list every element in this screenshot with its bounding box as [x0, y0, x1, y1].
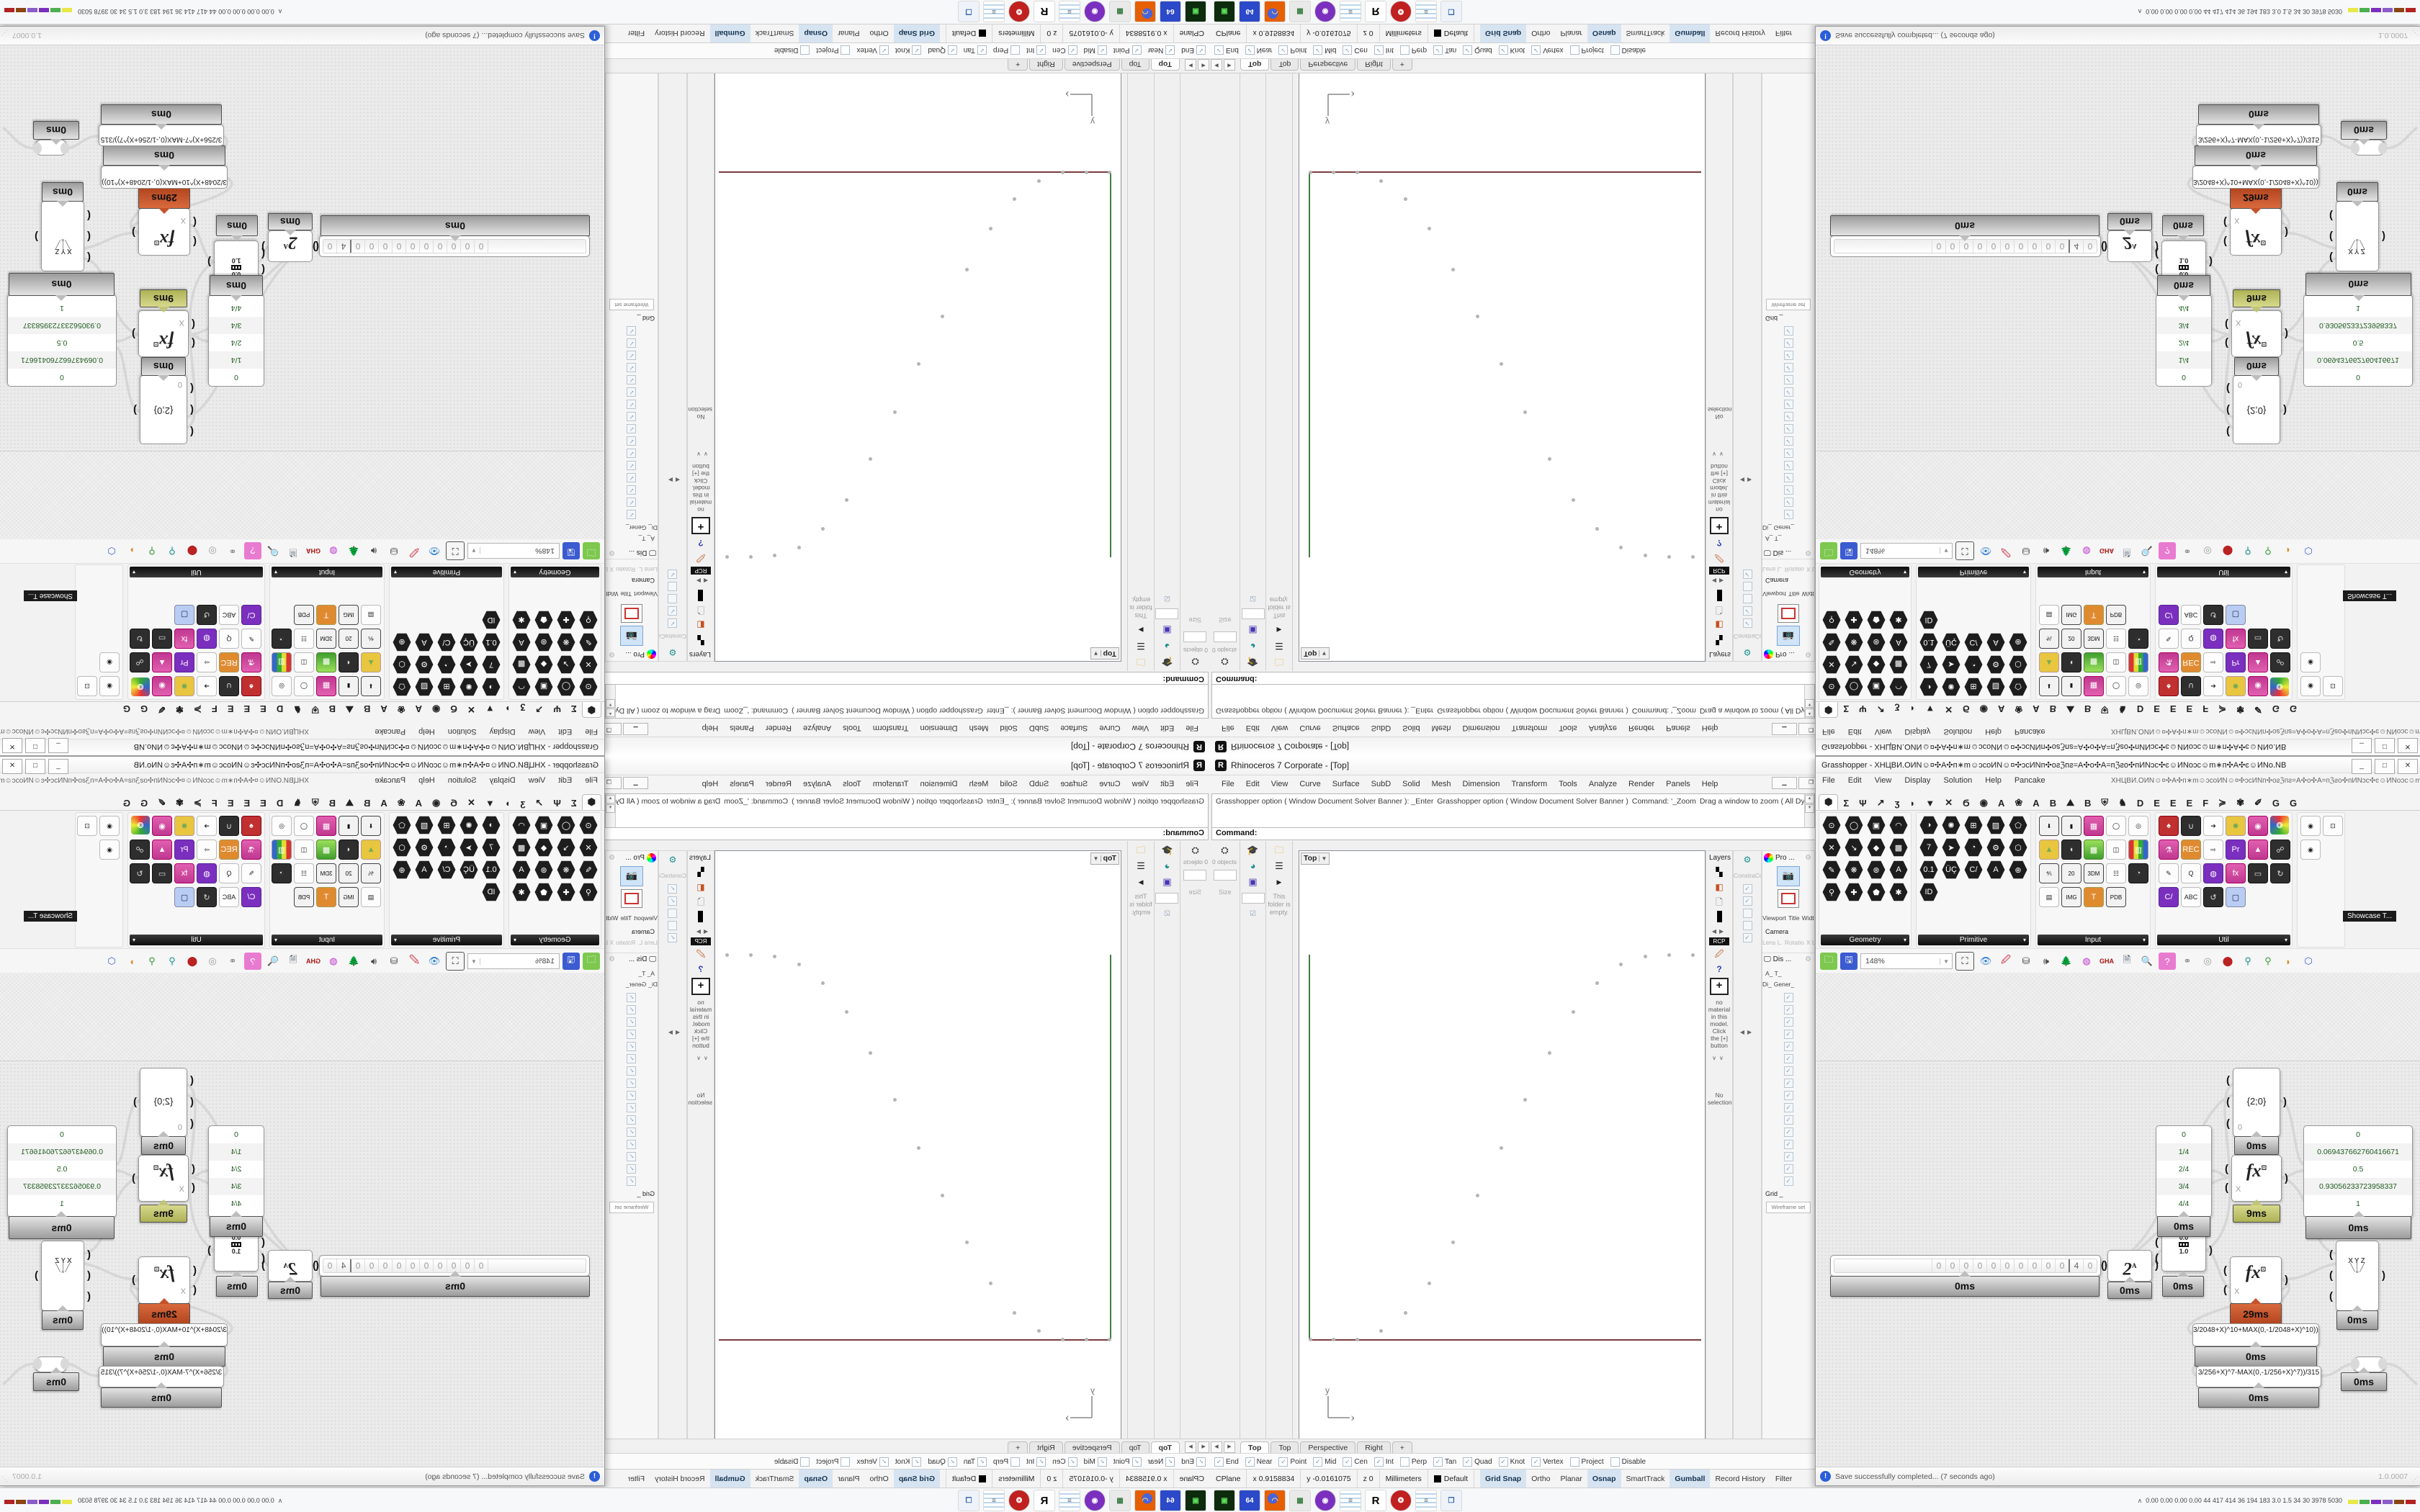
- list-item[interactable]: Cont: [1755, 633, 1762, 640]
- layer-color-icon[interactable]: ◧: [1711, 881, 1727, 894]
- osnap-checkbox[interactable]: ✓: [1313, 1457, 1322, 1467]
- output-grip[interactable]: ): [2209, 258, 2213, 265]
- palette-icon[interactable]: ▢: [2226, 605, 2246, 625]
- list-item[interactable]: Analyze: [1583, 780, 1623, 788]
- list-item[interactable]: X Loca.: [605, 939, 614, 946]
- speaker-icon[interactable]: 🕪: [2038, 953, 2055, 970]
- list-item[interactable]: Lens L.: [1762, 939, 1785, 946]
- osnap-project[interactable]: Project: [1570, 1457, 1604, 1467]
- status-cell[interactable]: Millimeters: [992, 1470, 1040, 1488]
- list-item[interactable]: ✓: [627, 326, 637, 336]
- list-item[interactable]: Title: [1788, 914, 1802, 922]
- pink-box-icon[interactable]: ?: [2159, 542, 2176, 559]
- slider-digit[interactable]: 0: [406, 1259, 420, 1272]
- list-item[interactable]: Pancake: [368, 776, 412, 785]
- osnap-checkbox[interactable]: ✓: [1531, 46, 1541, 55]
- gh-node-expression-29[interactable]: fx⊡X((): [138, 1256, 190, 1304]
- palette-icon[interactable]: IMG: [339, 887, 359, 907]
- layer-color-icon[interactable]: ◧: [693, 881, 709, 894]
- gh-canvas[interactable]: 000000000040)0ms2A()0ms0.01.0(()0msfx⊡X(…: [0, 973, 604, 1467]
- gh-tab[interactable]: Σ: [566, 702, 582, 716]
- list-item[interactable]: Render: [760, 724, 797, 732]
- gh-tab[interactable]: ⛰: [341, 702, 359, 716]
- palette-icon[interactable]: ▣: [1867, 678, 1886, 696]
- list-item[interactable]: ✓: [627, 387, 637, 397]
- list-item[interactable]: Grasshopper option ( Window Document Sol…: [1433, 797, 1628, 806]
- palette-icon[interactable]: ⊞: [1964, 816, 1983, 834]
- list-item[interactable]: Tools: [1553, 780, 1583, 788]
- properties-panel[interactable]: Pro ... ⚙ 📷 ViewportTitleWidthHeightProj…: [605, 71, 658, 662]
- gh-tab[interactable]: Ϭ: [1958, 796, 1975, 810]
- window-frame-icon[interactable]: ❐: [958, 1, 980, 22]
- toggle-gumball[interactable]: Gumball: [710, 1470, 750, 1488]
- checkbox-icon[interactable]: ☑: [1246, 908, 1260, 921]
- toggle-filter[interactable]: Filter: [623, 1470, 650, 1488]
- palette-icon[interactable]: ◫: [2106, 652, 2126, 672]
- palette-icon[interactable]: ⬇: [2039, 816, 2059, 836]
- output-grip[interactable]: ): [132, 1277, 135, 1284]
- list-item[interactable]: Help: [1696, 780, 1724, 788]
- palette-icon[interactable]: fx: [174, 629, 194, 649]
- list-item[interactable]: Render: [1623, 724, 1660, 732]
- slider-digit[interactable]: 0: [323, 1259, 337, 1272]
- viewport-tab-right[interactable]: Right: [1029, 1441, 1063, 1454]
- osnap-checkbox[interactable]: [1610, 1457, 1620, 1467]
- palette-icon[interactable]: ↺: [2203, 887, 2223, 907]
- palette-icon[interactable]: ◉: [152, 816, 172, 836]
- output-grip[interactable]: ): [132, 330, 135, 337]
- list-item[interactable]: ✓: [627, 473, 637, 482]
- list-item[interactable]: Solid: [994, 780, 1023, 788]
- notepad-icon[interactable]: ≡: [1059, 1, 1080, 22]
- palette-icon[interactable]: IMG: [2061, 605, 2081, 625]
- palette-icon[interactable]: ◍: [2203, 863, 2223, 883]
- osnap-cen[interactable]: ✓Cen: [1052, 46, 1077, 55]
- list-item[interactable]: View: [1265, 780, 1294, 788]
- gh-tab[interactable]: B: [2045, 702, 2061, 716]
- list-item[interactable]: Lens L.: [635, 939, 658, 946]
- rhino-menu-items[interactable]: FileEditViewCurveSurfaceSubDSolidMeshDim…: [1210, 724, 1729, 732]
- list-item[interactable]: ✓: [1784, 436, 1793, 446]
- screen-capture-icon[interactable]: ▦: [1109, 1, 1131, 22]
- viewport-tab-top[interactable]: Top: [1121, 58, 1149, 71]
- osnap-tan[interactable]: ✓Tan: [1433, 1457, 1456, 1467]
- rhino-app-icon[interactable]: R: [1034, 1, 1055, 22]
- constraints-panel[interactable]: ⚙ ConstraContTapaOptionUV FG0 PrG1 PrQua…: [1733, 71, 1762, 662]
- palette-icon[interactable]: ➤: [1942, 655, 1960, 674]
- palette-icon[interactable]: ✎: [579, 633, 598, 652]
- palette-icon[interactable]: ◆: [534, 838, 553, 857]
- toggle-gumball[interactable]: Gumball: [1670, 1470, 1710, 1488]
- palette-icon[interactable]: ⬇: [361, 676, 381, 696]
- list-item[interactable]: ✓: [1784, 1042, 1793, 1051]
- osnap-project[interactable]: Project: [1570, 46, 1604, 55]
- notepad2-icon[interactable]: ≡: [983, 1, 1005, 22]
- palette-icon[interactable]: ⊙: [579, 816, 598, 834]
- list-item[interactable]: ✓: [627, 363, 637, 372]
- status-cell[interactable]: y -0.0161075: [1301, 24, 1357, 42]
- gh-node-construct-point[interactable]: XYZ╲│╱°(((): [41, 1241, 84, 1311]
- palette-icon[interactable]: ⊙: [1822, 678, 1841, 696]
- purple-bot-icon[interactable]: ◉: [1314, 1490, 1336, 1511]
- layers-materials-panel[interactable]: Layers ▚ ◧ 🗋 ◀▶ RCP 🖉 ? + no material in…: [1706, 71, 1733, 662]
- gh-tab[interactable]: ✾: [2231, 702, 2249, 716]
- slider-digit[interactable]: 0: [1959, 240, 1973, 253]
- list-item[interactable]: Mesh: [963, 724, 994, 732]
- firefox-icon[interactable]: ◠: [1264, 1490, 1286, 1511]
- osnap-checkbox[interactable]: ✓: [879, 46, 889, 55]
- gh-tab[interactable]: B: [359, 702, 375, 716]
- teal-pin-icon[interactable]: ⚲: [163, 953, 181, 970]
- list-item[interactable]: File: [1216, 724, 1240, 732]
- palette-icon[interactable]: ◯: [557, 816, 575, 834]
- toggle-ortho[interactable]: Ortho: [865, 24, 894, 42]
- list-item[interactable]: Grasshopper option ( Window Document Sol…: [987, 797, 1208, 806]
- palette-icon[interactable]: ◑: [482, 816, 501, 834]
- gh-node-values-panel[interactable]: 00.0694376627604166710.50.93056233723958…: [2303, 294, 2413, 387]
- list-item[interactable]: ✓: [1784, 363, 1793, 372]
- palette-icon[interactable]: ▲: [361, 840, 381, 860]
- list-item[interactable]: ✓: [1784, 1140, 1793, 1149]
- palette-icon[interactable]: ⬠: [393, 816, 411, 834]
- palette-icon[interactable]: C/: [1964, 633, 1983, 652]
- osnap-knot[interactable]: ✓Knot: [895, 46, 922, 55]
- camera-property-rows[interactable]: Lens L.RotatioX Loca.Y Loca.Z Loca.Dista…: [1762, 935, 1814, 948]
- panel-nav-arrows[interactable]: ◀▶: [1706, 928, 1732, 935]
- list-item[interactable]: X Loca.: [1806, 939, 1815, 946]
- slider-digit[interactable]: 0: [2027, 240, 2041, 253]
- toggle-record-history[interactable]: Record History: [650, 24, 709, 42]
- palette-icon[interactable]: ✎: [1822, 633, 1841, 652]
- list-item[interactable]: Command: '_Zoom: [724, 706, 792, 715]
- status-cell[interactable]: CPlane: [1173, 1470, 1210, 1488]
- constraints-panel[interactable]: ⚙ ConstraContTapaOptionUV FG0 PrG1 PrQua…: [1733, 850, 1762, 1441]
- toggle-planar[interactable]: Planar: [833, 1470, 864, 1488]
- list-item[interactable]: Dimension: [915, 780, 964, 788]
- list-item[interactable]: Solid: [1397, 724, 1425, 732]
- palette-icon[interactable]: ▩: [1889, 655, 1908, 674]
- gh-node-quads-panel[interactable]: 01/42/43/44/4(): [208, 1125, 264, 1218]
- red-badge-icon[interactable]: ❂: [1390, 1490, 1412, 1511]
- list-item[interactable]: View: [522, 776, 552, 785]
- palette-icon[interactable]: ▦: [316, 816, 336, 836]
- top-viewport[interactable]: Top▼ y x: [714, 72, 1121, 662]
- gh-tab[interactable]: ✐: [2249, 796, 2267, 810]
- solver-barrel-icon[interactable]: ⛁: [385, 542, 403, 559]
- tab-scroll-right-icon[interactable]: ▶: [1224, 1441, 1235, 1453]
- input-grip[interactable]: (: [2225, 1166, 2228, 1173]
- input-grip[interactable]: (: [2329, 1293, 2333, 1300]
- osnap-checkbox[interactable]: ✓: [1463, 1457, 1472, 1467]
- gh-tab[interactable]: ✐: [153, 796, 171, 810]
- toggle-grid-snap[interactable]: Grid Snap: [1480, 1470, 1526, 1488]
- palette-icon[interactable]: ▲: [361, 652, 381, 672]
- display-checkboxes[interactable]: ✓✓✓✓✓✓✓✓✓✓✓✓✓✓✓✓: [606, 326, 658, 522]
- slider-digit[interactable]: 0: [2083, 1259, 2097, 1272]
- osnap-near[interactable]: ✓Near: [1245, 1457, 1273, 1467]
- terminal-app-icon[interactable]: ▣: [1185, 1490, 1206, 1511]
- palette-icon[interactable]: ✎: [241, 629, 261, 649]
- constraints-panel[interactable]: ⚙ ConstraContTapaOptionUV FG0 PrG1 PrQua…: [658, 850, 687, 1441]
- command-scrollbar[interactable]: ▲▼: [1804, 794, 1814, 827]
- add-material-button[interactable]: +: [691, 517, 710, 534]
- palette-icon[interactable]: ◍: [197, 629, 217, 649]
- gh-tab[interactable]: ⛨: [2096, 796, 2113, 810]
- gh-node-quads-panel[interactable]: 01/42/43/44/4(): [208, 294, 264, 387]
- palette-icon[interactable]: ✕: [1822, 655, 1841, 674]
- status-cell[interactable]: CPlane: [1210, 24, 1247, 42]
- output-grip[interactable]: ): [207, 258, 211, 265]
- tray-chevron-icon[interactable]: ʌ: [279, 8, 282, 15]
- left-input-box[interactable]: [1242, 893, 1265, 904]
- viewport-tab-top[interactable]: Top: [1151, 58, 1180, 71]
- palette-icon[interactable]: REC: [219, 840, 239, 860]
- education-icon[interactable]: 🎓: [1160, 844, 1175, 857]
- save-file-icon[interactable]: 🖫: [563, 953, 580, 970]
- viewport-tab-perspective[interactable]: Perspective: [1065, 58, 1120, 71]
- gh-node-quads-panel[interactable]: 01/42/43/44/4(): [2156, 294, 2212, 387]
- list-item[interactable]: ✓: [1784, 1152, 1793, 1161]
- osnap-int[interactable]: ✓Int: [1374, 1457, 1394, 1467]
- gh-tab[interactable]: A: [1993, 796, 2009, 810]
- palette-icon[interactable]: ↘: [1845, 655, 1863, 674]
- list-item[interactable]: ✓: [1784, 485, 1793, 495]
- palette-icon[interactable]: ↺: [2203, 605, 2223, 625]
- list-item[interactable]: Width: [1802, 914, 1815, 922]
- osnap-checkbox[interactable]: ✓: [948, 46, 957, 55]
- gh-tab[interactable]: ♞: [288, 702, 307, 716]
- check-2[interactable]: ✓: [1743, 606, 1752, 616]
- list-item[interactable]: Solution: [1937, 776, 1978, 785]
- gh-tab[interactable]: Ϭ: [445, 796, 462, 810]
- list-item[interactable]: Help: [696, 724, 725, 732]
- palette-icon[interactable]: ÜÇ: [1942, 633, 1960, 652]
- wireframe-settings-button[interactable]: Wireframe set: [1766, 1202, 1811, 1213]
- viewport-properties-button[interactable]: [1778, 889, 1799, 908]
- viewport-tab-+[interactable]: +: [1008, 58, 1028, 71]
- gh-node-construct-point[interactable]: XYZ╲│╱°(((): [2336, 201, 2379, 271]
- orange-half-icon[interactable]: ◗: [123, 953, 140, 970]
- status-cell[interactable]: y -0.0161075: [1062, 24, 1119, 42]
- wire-display-icon[interactable]: 🖉: [1997, 542, 2015, 559]
- list-item[interactable]: ✓: [1784, 1164, 1793, 1174]
- command-prompt[interactable]: Command:: [601, 672, 1209, 685]
- palette-icon[interactable]: ⚙: [1986, 655, 2005, 674]
- palette-icon[interactable]: fx: [2226, 629, 2246, 649]
- tray-chevron-icon[interactable]: ʌ: [2138, 1497, 2142, 1504]
- palette-icon[interactable]: ♠: [2159, 676, 2179, 696]
- palette-icon[interactable]: ▮: [339, 676, 359, 696]
- list-item[interactable]: Solution: [442, 776, 483, 785]
- checkbox-icon[interactable]: ☑: [1246, 591, 1260, 604]
- folder-icon[interactable]: 🗀: [1134, 655, 1148, 668]
- tab-scroll-left-icon[interactable]: ◀: [1211, 59, 1222, 71]
- osnap-checkbox[interactable]: ✓: [1343, 1457, 1352, 1467]
- gha-icon[interactable]: GHA: [2098, 953, 2115, 970]
- slider-digit[interactable]: 0: [1986, 1259, 2000, 1272]
- pink-box-icon[interactable]: ?: [2159, 953, 2176, 970]
- palette-icon[interactable]: Q: [219, 863, 239, 883]
- gh-node-expression-29[interactable]: fx⊡X((): [138, 208, 190, 256]
- toggle-smarttrack[interactable]: SmartTrack: [750, 24, 799, 42]
- osnap-checkbox[interactable]: ✓: [1278, 1457, 1288, 1467]
- list-item[interactable]: Surface: [1054, 724, 1093, 732]
- palette-icon[interactable]: ◯: [557, 678, 575, 696]
- osnap-quad[interactable]: ✓Quad: [928, 1457, 956, 1467]
- list-item[interactable]: Cont: [1755, 872, 1762, 879]
- palette-icon[interactable]: ✎: [579, 860, 598, 879]
- palette-icon[interactable]: ↺: [197, 605, 217, 625]
- red-drop-icon[interactable]: ⬤: [184, 953, 201, 970]
- list-item[interactable]: Help: [1978, 727, 2008, 736]
- palette-group-label[interactable]: Input▾: [2038, 567, 2148, 577]
- gh-tab[interactable]: E: [223, 702, 239, 716]
- palette-icon[interactable]: ⊡: [77, 816, 97, 836]
- zoom-level-select[interactable]: 148%▼: [1860, 543, 1953, 559]
- solver-barrel-icon[interactable]: ⛁: [385, 953, 403, 970]
- palette-icon[interactable]: ID: [482, 611, 501, 629]
- palette-icon[interactable]: ✚: [557, 883, 575, 901]
- list-item[interactable]: View: [1265, 724, 1294, 732]
- list-item[interactable]: Command: '_Zoom: [1628, 797, 1696, 806]
- list-item[interactable]: Help: [412, 727, 442, 736]
- camera-property-rows[interactable]: Lens L.RotatioX Loca.Y Loca.Z Loca.Dista…: [1762, 564, 1814, 577]
- list-item[interactable]: Grasshopper option ( Window Document Sol…: [792, 797, 987, 806]
- list-item[interactable]: Help: [1696, 724, 1724, 732]
- palette-icon[interactable]: T: [316, 605, 336, 625]
- osnap-quad[interactable]: ✓Quad: [1463, 46, 1492, 55]
- osnap-checkbox[interactable]: [841, 1457, 850, 1467]
- purple-bot-icon[interactable]: ◉: [1084, 1490, 1106, 1511]
- palette-icon[interactable]: ✕: [579, 655, 598, 674]
- gh-tab[interactable]: G: [2285, 796, 2302, 810]
- gh-tab[interactable]: ✾: [171, 702, 189, 716]
- input-grip[interactable]: (: [2226, 406, 2230, 413]
- list-item[interactable]: View: [1868, 776, 1899, 785]
- palette-icon[interactable]: ⬠: [2009, 816, 2027, 834]
- toggle-ortho[interactable]: Ortho: [865, 1470, 894, 1488]
- osnap-checkbox[interactable]: ✓: [912, 1457, 921, 1467]
- palette-icon[interactable]: ▩: [316, 652, 336, 672]
- gh-maximize-button[interactable]: □: [25, 759, 45, 774]
- slider-digit[interactable]: 0: [420, 240, 434, 253]
- slider-digit[interactable]: 0: [475, 1259, 488, 1272]
- input-grip[interactable]: (: [2155, 266, 2159, 273]
- gh-tab[interactable]: E: [2148, 702, 2165, 716]
- move-gear-icon[interactable]: ⛭: [1188, 844, 1203, 857]
- palette-icon[interactable]: ▢: [2226, 887, 2246, 907]
- list-item[interactable]: ✓: [627, 1030, 637, 1039]
- palette-group-label[interactable]: Geometry▾: [1821, 935, 1909, 945]
- palette-icon[interactable]: ◉: [99, 840, 120, 860]
- palette-icon[interactable]: ☷: [294, 629, 314, 649]
- osnap-checkbox[interactable]: ✓: [1433, 46, 1443, 55]
- palette-icon[interactable]: ⬟: [534, 883, 553, 901]
- list-item[interactable]: ✓: [1784, 1103, 1793, 1112]
- gh-node-quads-panel[interactable]: 01/42/43/44/4(): [2156, 1125, 2212, 1218]
- list-item[interactable]: ✓: [1784, 1091, 1793, 1100]
- osnap-checkbox[interactable]: ✓: [1036, 1457, 1046, 1467]
- balls-icon[interactable]: ⚭: [2179, 542, 2196, 559]
- slider-digit[interactable]: 0: [2055, 1259, 2069, 1272]
- palette-icon[interactable]: ⚲: [579, 883, 598, 901]
- list-item[interactable]: Command: '_Zoom: [1628, 706, 1696, 715]
- list-item[interactable]: Di_: [1762, 524, 1774, 531]
- toggle-filter[interactable]: Filter: [1770, 24, 1797, 42]
- palette-icon[interactable]: ✹: [2226, 676, 2246, 696]
- palette-icon[interactable]: ◆: [1867, 838, 1886, 857]
- input-grip[interactable]: (: [190, 406, 194, 413]
- help-icon[interactable]: ?: [693, 963, 709, 976]
- palette-icon[interactable]: ▤: [361, 605, 381, 625]
- grasshopper-title-bar[interactable]: Grasshopper - ХНЦВИ.ОИN☺¤✣А✣п∗m☺ͻϲοИN☺¤✣…: [0, 757, 604, 773]
- palette-icon[interactable]: ↘: [557, 655, 575, 674]
- scroll-down-icon[interactable]: ▼: [1805, 699, 1814, 708]
- folder-panel[interactable]: 🗀 ☰ ▶ This folder is empty.: [1127, 72, 1154, 671]
- sphere-icon[interactable]: ◕: [1160, 860, 1175, 873]
- layer-color-icon[interactable]: ◧: [1711, 618, 1727, 631]
- add-material-button[interactable]: +: [1710, 978, 1729, 995]
- palette-group-label[interactable]: Primitive▾: [1918, 567, 2029, 577]
- check-5[interactable]: ✓: [1743, 570, 1752, 579]
- palette-icon[interactable]: Q: [2181, 629, 2201, 649]
- check-4[interactable]: [1743, 921, 1752, 930]
- hamburger-icon[interactable]: ☰: [1134, 860, 1148, 873]
- palette-icon[interactable]: ◠: [512, 816, 531, 834]
- palette-icon[interactable]: Pr: [2226, 652, 2246, 672]
- gear-icon[interactable]: ⚙: [1805, 650, 1811, 658]
- status-cell[interactable]: Default: [1428, 24, 1474, 42]
- list-item[interactable]: Size: [1188, 616, 1201, 624]
- scroll-down-icon[interactable]: ▼: [606, 699, 615, 708]
- palette-icon[interactable]: C/: [2159, 887, 2179, 907]
- palette-icon[interactable]: ▣: [534, 816, 553, 834]
- list-item[interactable]: File: [1816, 727, 1842, 736]
- list-item[interactable]: ✓: [1784, 461, 1793, 470]
- palette-icon[interactable]: ◑: [1919, 678, 1938, 696]
- palette-icon[interactable]: ◆: [1867, 655, 1886, 674]
- gh-maximize-button[interactable]: □: [2375, 759, 2395, 774]
- palette-icon[interactable]: ▲: [2248, 840, 2268, 860]
- list-item[interactable]: ✓: [627, 375, 637, 384]
- osnap-checkbox[interactable]: ✓: [1499, 46, 1508, 55]
- status-cell[interactable]: Default: [946, 24, 992, 42]
- palette-icon[interactable]: ⬇: [2039, 676, 2059, 696]
- pink-box-icon[interactable]: ?: [244, 542, 261, 559]
- palette-icon[interactable]: ✎: [2159, 629, 2179, 649]
- status-cell[interactable]: CPlane: [1173, 24, 1210, 42]
- list-item[interactable]: Surface: [1327, 724, 1366, 732]
- list-item[interactable]: Panels: [724, 780, 760, 788]
- palette-group-label[interactable]: Primitive▾: [391, 567, 502, 577]
- gh-tab[interactable]: ✕: [1940, 796, 1958, 810]
- list-item[interactable]: Width: [1802, 590, 1815, 598]
- left-icon-panel[interactable]: 🎓 ◕ ▣ ☑: [1154, 72, 1180, 671]
- layer-color-icon[interactable]: ◧: [693, 618, 709, 631]
- list-item[interactable]: Display: [483, 727, 522, 736]
- toggle-grid-snap[interactable]: Grid Snap: [894, 24, 940, 42]
- list-item[interactable]: Viewport: [632, 914, 658, 922]
- list-item[interactable]: Grasshopper option ( Window Document Sol…: [1433, 706, 1628, 715]
- palette-icon[interactable]: ✹: [174, 816, 194, 836]
- monitor-icon[interactable]: ▣: [1246, 624, 1260, 636]
- list-item[interactable]: ✓: [627, 351, 637, 360]
- output-grip[interactable]: ): [133, 1099, 137, 1106]
- open-file-icon[interactable]: 🗀: [583, 542, 600, 559]
- input-grip[interactable]: (: [192, 1184, 195, 1192]
- osnap-checkbox[interactable]: ✓: [1278, 46, 1288, 55]
- palette-icon[interactable]: ∪: [219, 676, 239, 696]
